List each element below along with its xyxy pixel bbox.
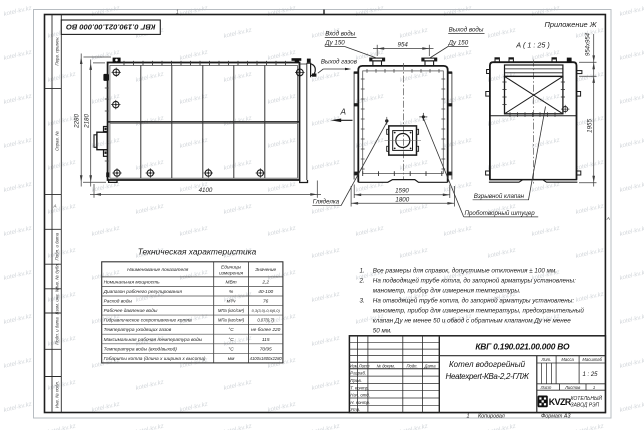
svg-text:70/95: 70/95 <box>260 346 272 352</box>
svg-text:2,2: 2,2 <box>261 280 269 286</box>
svg-text:Гидравлическое сопротивление к: Гидравлическое сопротивление котла <box>104 318 192 324</box>
svg-text:Масса: Масса <box>561 357 574 362</box>
svg-text:4100: 4100 <box>199 187 213 194</box>
svg-text:На подводящей трубе котла, до: На подводящей трубе котла, до запорной а… <box>373 276 576 284</box>
svg-text:клапан Ду не менее 50 и обвод: клапан Ду не менее 50 и обвод с обратным… <box>373 316 571 324</box>
svg-text:Инв. № подл.: Инв. № подл. <box>55 381 60 408</box>
svg-text:Heatexpert-КВа-2,2-ГЛЖ: Heatexpert-КВа-2,2-ГЛЖ <box>445 372 529 381</box>
svg-text:°С: °С <box>228 327 234 333</box>
svg-text:Пров.: Пров. <box>350 378 362 383</box>
svg-text:KVZR: KVZR <box>549 397 572 407</box>
svg-text:Изм Лист: Изм Лист <box>350 363 370 368</box>
svg-text:А: А <box>606 216 610 221</box>
svg-text:Диапазон рабочего регулировани: Диапазон рабочего регулирования <box>103 289 183 295</box>
svg-text:954: 954 <box>398 41 409 48</box>
svg-text:Вход воды: Вход воды <box>325 30 355 37</box>
svg-text:Нач. отд.: Нач. отд. <box>350 393 370 398</box>
svg-text:На отводящей трубе котла, до з: На отводящей трубе котла, до запорной ар… <box>373 296 575 304</box>
svg-text:Ду 150: Ду 150 <box>324 40 345 47</box>
svg-text:Подп.: Подп. <box>407 363 418 368</box>
svg-text:Гляделка: Гляделка <box>313 199 340 206</box>
svg-text:Проботворный штуцер: Проботворный штуцер <box>465 210 536 217</box>
svg-text:ЗАВОД РЭП: ЗАВОД РЭП <box>571 403 600 409</box>
svg-text:Котел водогрейный: Котел водогрейный <box>449 360 526 369</box>
svg-text:КВГ 0.190.021.00.000 ВО: КВГ 0.190.021.00.000 ВО <box>66 22 155 31</box>
svg-text:Габариты котла (длина х ширина: Габариты котла (длина х ширина х высота) <box>104 356 206 362</box>
svg-text:Температура воды (вход/выход): Температура воды (вход/выход) <box>104 346 178 352</box>
svg-text:МПа (кгс/см²): МПа (кгс/см²) <box>218 318 245 323</box>
svg-text:Инв. № дубл.: Инв. № дубл. <box>55 263 60 290</box>
svg-text:Лит.: Лит. <box>540 357 551 362</box>
svg-text:Утв.: Утв. <box>350 407 360 412</box>
svg-text:Наименование показателя: Наименование показателя <box>127 267 189 273</box>
svg-text:Формат А3: Формат А3 <box>541 414 571 420</box>
svg-text:Температура уходящих газов: Температура уходящих газов <box>104 327 172 333</box>
svg-text:м³/ч: м³/ч <box>227 299 236 305</box>
svg-text:№ докум.: № докум. <box>377 363 395 368</box>
svg-text:Номинальная мощность: Номинальная мощность <box>104 280 161 286</box>
svg-text:1590: 1590 <box>395 188 409 195</box>
svg-text:1 : 25: 1 : 25 <box>582 372 598 378</box>
svg-text:3.: 3. <box>360 297 365 304</box>
svg-text:мм: мм <box>228 357 235 362</box>
svg-text:4100х1800х2280: 4100х1800х2280 <box>250 356 283 361</box>
svg-text:1: 1 <box>467 414 470 420</box>
svg-text:КВГ 0.190.021.00.000 ВО: КВГ 0.190.021.00.000 ВО <box>475 342 570 352</box>
svg-text:1: 1 <box>593 385 595 390</box>
svg-text:50 мм.: 50 мм. <box>373 327 392 334</box>
svg-text:Выход газов: Выход газов <box>321 58 358 65</box>
svg-text:954х954: 954х954 <box>586 32 592 56</box>
svg-text:2180: 2180 <box>83 114 90 129</box>
svg-text:76: 76 <box>263 299 269 305</box>
svg-text:А: А <box>52 204 56 209</box>
svg-text:А: А <box>340 108 347 117</box>
svg-text:КОТЕЛЬНЫЙ: КОТЕЛЬНЫЙ <box>571 394 603 402</box>
svg-text:Взам. инв. №: Взам. инв. № <box>55 287 60 314</box>
svg-text:Дата: Дата <box>424 363 437 368</box>
svg-text:Копировал: Копировал <box>478 414 505 420</box>
svg-text:1955: 1955 <box>586 119 593 133</box>
svg-text:°С: °С <box>228 337 234 343</box>
svg-text:115: 115 <box>262 337 270 343</box>
svg-text:Все размеры для справок, допус: Все размеры для справок, допустимые откл… <box>373 266 557 274</box>
svg-text:Ду 150: Ду 150 <box>448 40 469 47</box>
svg-text:Подп. и дата: Подп. и дата <box>55 232 60 260</box>
svg-text:Справ. №: Справ. № <box>55 131 60 151</box>
svg-text:Подп. и дата: Подп. и дата <box>55 317 60 345</box>
svg-text:0,3(3,0)-0,6(6,0): 0,3(3,0)-0,6(6,0) <box>252 308 281 313</box>
svg-text:1.: 1. <box>360 267 365 274</box>
svg-text:0,07(0,7): 0,07(0,7) <box>257 318 274 323</box>
svg-text:МПа (кгс/см²): МПа (кгс/см²) <box>218 308 245 313</box>
svg-text:Максимальная рабочая температу: Максимальная рабочая температура воды <box>104 337 203 343</box>
svg-text:Масштаб: Масштаб <box>582 357 602 362</box>
svg-text:%: % <box>229 289 234 295</box>
svg-text:Т. контр.: Т. контр. <box>350 385 369 390</box>
svg-text:МВт: МВт <box>225 280 236 286</box>
svg-text:40-100: 40-100 <box>258 289 273 295</box>
svg-text:Н. контр.: Н. контр. <box>350 400 370 405</box>
svg-text:1: 1 <box>176 10 179 16</box>
svg-text:не более 220: не более 220 <box>251 327 281 333</box>
svg-text:Выход воды: Выход воды <box>449 26 484 33</box>
svg-text:Перв. примен.: Перв. примен. <box>55 36 60 65</box>
svg-text:Значение: Значение <box>255 267 276 273</box>
svg-text:измерения: измерения <box>219 271 243 276</box>
svg-text:манометр, прибор для измерения: манометр, прибор для измерения температу… <box>373 306 585 314</box>
svg-text:Лист: Лист <box>540 385 552 390</box>
svg-text:°С: °С <box>228 346 234 352</box>
svg-text:манометр, прибор для измерения: манометр, прибор для измерения температу… <box>373 286 521 294</box>
svg-text:1800: 1800 <box>395 196 409 203</box>
svg-text:Взрывной клапан: Взрывной клапан <box>474 193 525 200</box>
svg-text:Техническая характеристика: Техническая характеристика <box>138 247 257 257</box>
svg-text:2.: 2. <box>359 277 365 284</box>
svg-text:Единицы: Единицы <box>221 264 242 270</box>
svg-text:А ( 1 : 25 ): А ( 1 : 25 ) <box>515 41 550 50</box>
svg-text:Листов: Листов <box>564 385 581 390</box>
svg-text:Приложение Ж: Приложение Ж <box>544 20 597 29</box>
svg-text:Рабочее давление воды: Рабочее давление воды <box>104 308 158 314</box>
svg-text:Разраб.: Разраб. <box>350 371 366 376</box>
svg-text:Расход воды: Расход воды <box>104 299 133 305</box>
svg-text:2280: 2280 <box>74 114 81 129</box>
